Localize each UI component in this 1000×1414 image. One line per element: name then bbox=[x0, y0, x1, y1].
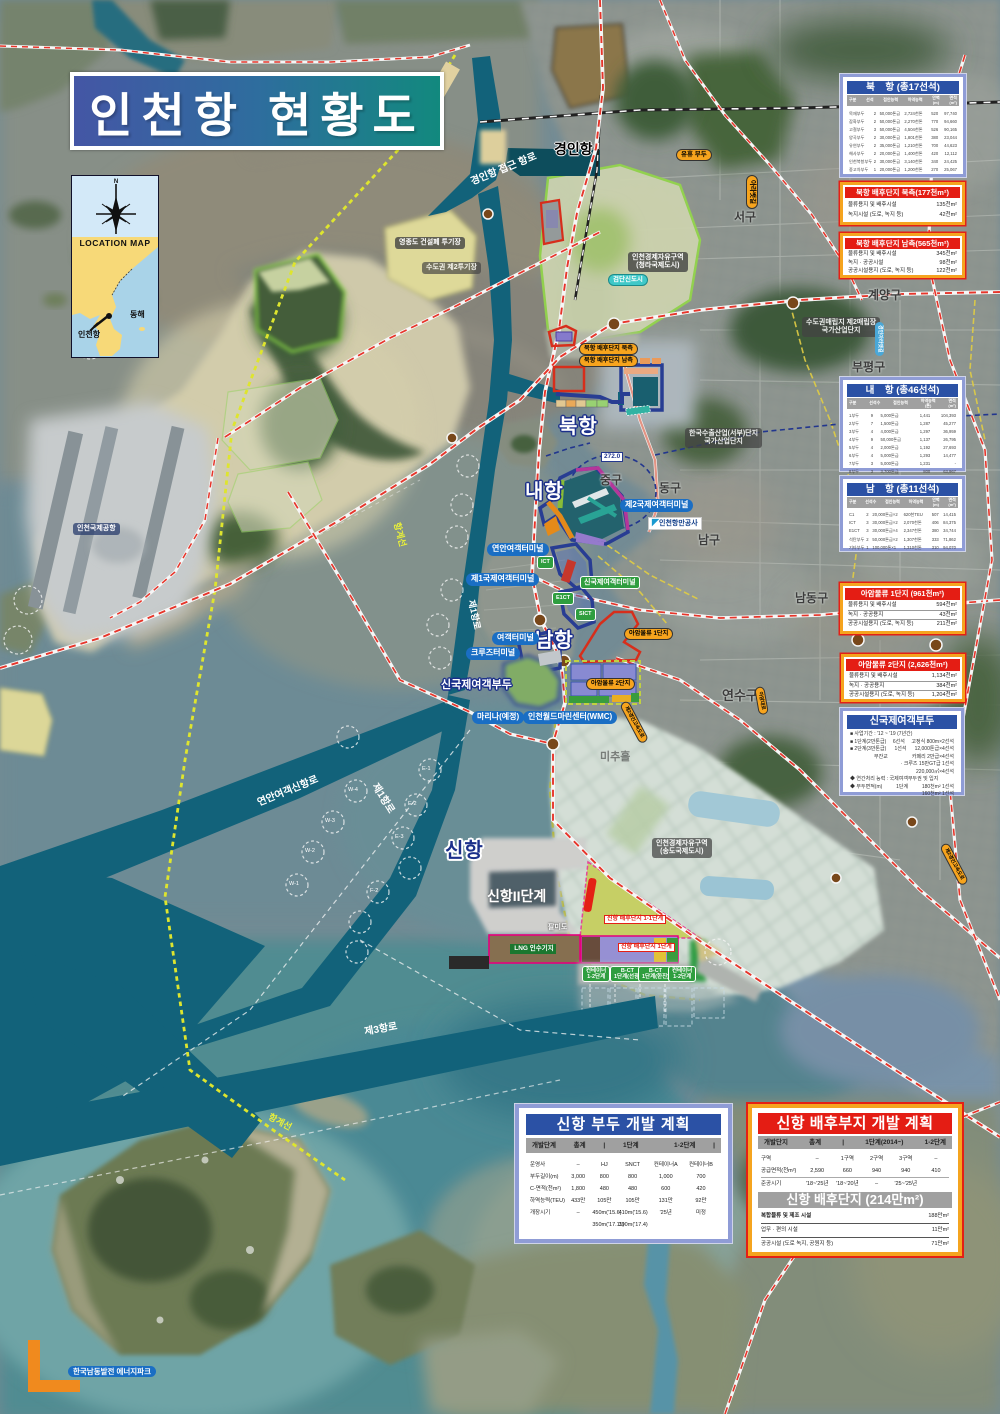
svg-text:인천항: 인천항 bbox=[78, 329, 101, 339]
svg-text:동해: 동해 bbox=[130, 309, 145, 319]
svg-text:N: N bbox=[114, 179, 118, 185]
